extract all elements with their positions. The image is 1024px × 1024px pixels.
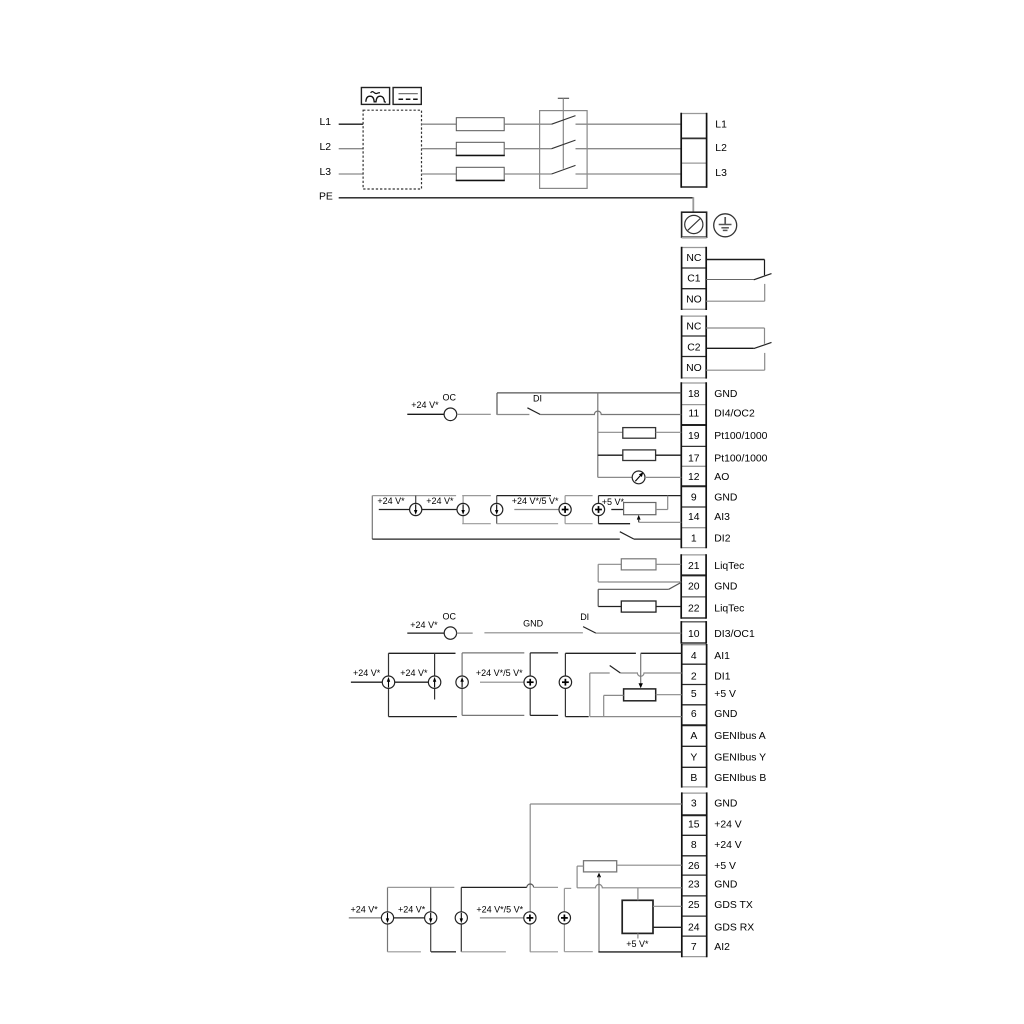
svg-text:20: 20 [688,582,700,593]
svg-text:L2: L2 [320,142,332,153]
svg-text:NC: NC [686,253,702,264]
svg-text:4: 4 [691,651,697,662]
svg-text:C1: C1 [687,274,701,285]
svg-text:DI4/OC2: DI4/OC2 [714,408,755,419]
svg-text:22: 22 [688,603,700,614]
svg-text:+24 V*: +24 V* [353,668,381,678]
svg-text:+24 V*: +24 V* [351,904,379,914]
svg-text:Pt100/1000: Pt100/1000 [714,431,767,442]
svg-text:GENIbus B: GENIbus B [714,773,766,784]
svg-text:DI3/OC1: DI3/OC1 [714,629,755,640]
svg-text:+5 V: +5 V [714,689,736,700]
svg-text:11: 11 [688,408,699,419]
svg-text:DI: DI [580,612,589,622]
svg-text:GDS TX: GDS TX [714,900,753,911]
svg-text:NO: NO [686,294,702,305]
svg-text:3: 3 [691,798,697,809]
svg-text:+24 V*: +24 V* [411,400,439,410]
svg-text:GENIbus A: GENIbus A [714,731,765,742]
svg-text:NO: NO [686,363,702,374]
svg-text:26: 26 [688,861,700,872]
svg-text:GND: GND [714,389,737,400]
svg-text:GND: GND [714,880,737,891]
svg-text:GDS RX: GDS RX [714,922,754,933]
svg-text:NC: NC [686,321,702,332]
svg-text:GND: GND [714,709,737,720]
svg-text:+24 V: +24 V [714,840,742,851]
svg-text:AI1: AI1 [714,651,730,662]
svg-text:AI3: AI3 [714,512,730,523]
svg-text:10: 10 [688,629,700,640]
svg-text:21: 21 [688,561,700,572]
svg-text:1: 1 [691,533,697,544]
svg-text:+24 V*: +24 V* [410,620,438,630]
svg-text:B: B [690,773,697,784]
svg-text:DI: DI [533,394,542,404]
svg-text:L2: L2 [715,143,727,154]
svg-text:15: 15 [688,819,700,830]
svg-text:+24 V*: +24 V* [398,904,426,914]
svg-text:DI1: DI1 [714,671,730,682]
svg-text:GND: GND [523,619,544,629]
svg-text:GENIbus Y: GENIbus Y [714,753,766,764]
svg-text:+5 V*: +5 V* [602,497,625,507]
svg-text:25: 25 [688,900,700,911]
svg-text:23: 23 [688,880,700,891]
svg-text:GND: GND [714,493,737,504]
svg-text:+24 V*: +24 V* [400,668,428,678]
svg-text:24: 24 [688,922,700,933]
svg-text:+24 V*: +24 V* [426,496,454,506]
svg-text:L1: L1 [320,117,332,128]
svg-text:L1: L1 [715,119,727,130]
svg-text:LiqTec: LiqTec [714,603,744,614]
svg-text:2: 2 [691,671,697,682]
svg-text:L3: L3 [320,167,332,178]
svg-text:LiqTec: LiqTec [714,561,744,572]
svg-text:GND: GND [714,582,737,593]
svg-text:A: A [690,731,697,742]
svg-text:6: 6 [691,709,697,720]
svg-text:+24 V*/5 V*: +24 V*/5 V* [476,668,523,678]
svg-text:17: 17 [688,453,700,464]
svg-text:9: 9 [691,493,697,504]
svg-text:DI2: DI2 [714,533,730,544]
svg-text:C2: C2 [687,342,701,353]
svg-text:AO: AO [714,472,729,483]
svg-text:PE: PE [319,191,333,202]
svg-text:+5 V*: +5 V* [626,939,649,949]
svg-text:18: 18 [688,389,700,400]
svg-text:+24 V*/5 V*: +24 V*/5 V* [512,496,559,506]
svg-text:AI2: AI2 [714,942,730,953]
svg-text:L3: L3 [715,168,727,179]
svg-text:Y: Y [690,753,697,764]
svg-text:+24 V*: +24 V* [377,496,405,506]
svg-text:12: 12 [688,472,700,483]
svg-text:Pt100/1000: Pt100/1000 [714,453,767,464]
svg-text:7: 7 [691,942,697,953]
svg-text:5: 5 [691,689,697,700]
svg-text:OC: OC [443,393,457,403]
svg-text:OC: OC [443,612,457,622]
svg-text:GND: GND [714,798,737,809]
svg-text:+5 V: +5 V [714,861,736,872]
svg-text:14: 14 [688,512,700,523]
svg-text:+24 V*/5 V*: +24 V*/5 V* [476,904,523,914]
svg-text:8: 8 [691,840,697,851]
svg-text:+24 V: +24 V [714,819,742,830]
svg-text:19: 19 [688,431,700,442]
